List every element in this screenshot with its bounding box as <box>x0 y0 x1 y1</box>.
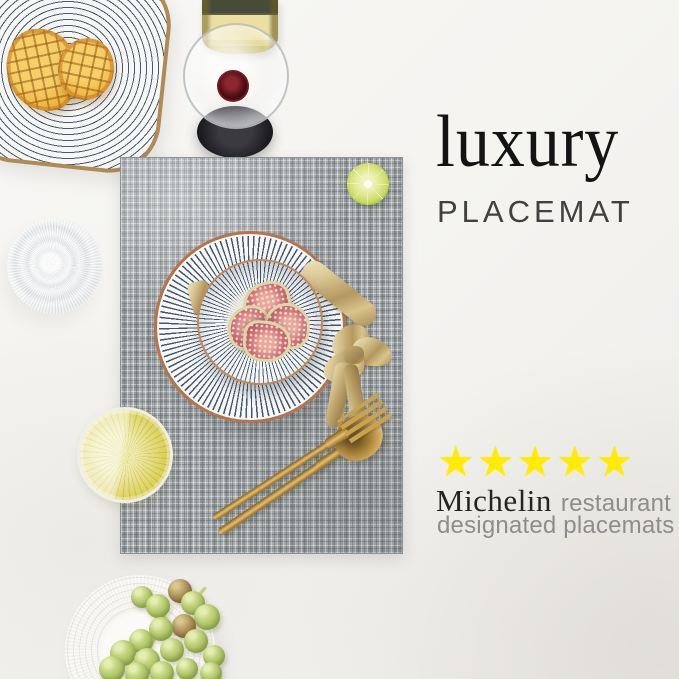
grape <box>99 656 125 679</box>
lime-half <box>347 163 389 205</box>
grape <box>150 661 174 679</box>
product-photo-table-setting: luxury PLACEMAT ★★★★★ Michelin restauran… <box>0 0 679 679</box>
page-title: luxury <box>436 104 619 182</box>
grape <box>176 658 198 679</box>
grape <box>125 662 149 679</box>
tagline-line2: designated placemats <box>437 512 674 540</box>
water-glass <box>7 219 102 314</box>
grape <box>160 638 184 662</box>
grape <box>146 594 170 618</box>
page-subtitle: PLACEMAT <box>437 194 634 230</box>
five-star-rating-icon: ★★★★★ <box>437 441 635 483</box>
ribbon-knot <box>344 346 364 364</box>
red-wine <box>217 70 249 102</box>
white-wine-glass <box>77 407 173 503</box>
grape <box>194 604 220 630</box>
grape <box>200 662 222 679</box>
